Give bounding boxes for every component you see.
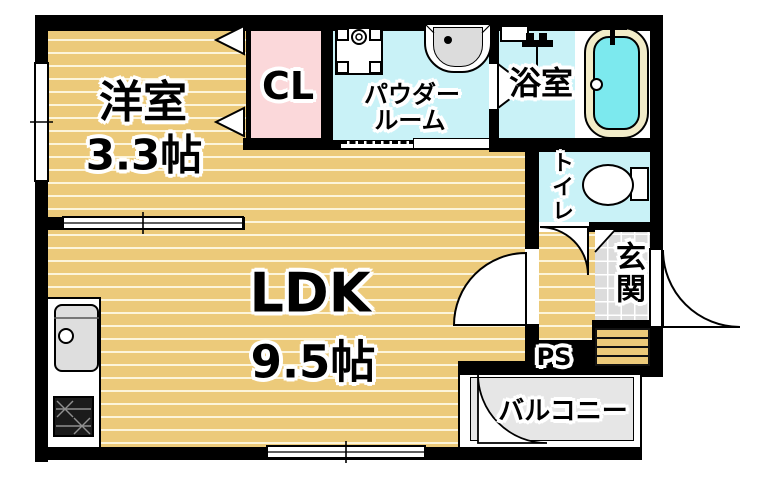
bathroom-label: 浴室: [509, 58, 573, 104]
toilet-bowl-icon: [582, 164, 634, 206]
entrance-door-swing-icon: [663, 250, 740, 327]
ldk-label: LDK: [249, 262, 370, 325]
wall-right-upper: [650, 15, 663, 250]
pan-corner: [336, 28, 349, 41]
wall-closet-powder: [321, 26, 333, 150]
entrance-door-leaf: [649, 248, 663, 328]
powder-room-label-line2: ルーム: [374, 101, 445, 136]
doorway-bath: [489, 64, 499, 109]
toilet-label: トイレ: [544, 151, 576, 223]
wall-closet-bottom: [243, 138, 333, 150]
bath-window: [500, 25, 529, 42]
wall-bath-toilet: [489, 138, 663, 152]
balcony-label: バルコニー: [498, 391, 627, 428]
pan-corner: [369, 28, 382, 41]
ldk-size: 9.5帖: [251, 326, 376, 391]
bathtub-faucet-icon: [600, 21, 627, 30]
pan-corner: [369, 61, 382, 74]
doorway-toilet: [539, 222, 589, 232]
window-western-left: [34, 62, 49, 182]
entrance-label: 玄関: [605, 241, 649, 305]
window-ldk-bottom: [266, 445, 426, 459]
slider-western-ldk: [62, 216, 244, 230]
bathtub-drain-icon: [590, 78, 603, 91]
pipe-space-label: PS: [537, 343, 572, 371]
basin-faucet-icon: [444, 36, 452, 44]
slider-powder: [413, 138, 490, 149]
washing-machine-pan-icon: [335, 27, 383, 75]
sink-faucet-icon: [58, 328, 74, 344]
outside-patch: [642, 377, 672, 447]
opening-powder-dashed: [341, 141, 415, 148]
gas-stove-icon: [53, 396, 94, 437]
bathtub-faucet-stem: [610, 30, 615, 45]
doorway-ldk-hall: [525, 249, 539, 324]
wash-basin-bowl: [433, 27, 483, 67]
western-room-size: 3.3帖: [86, 122, 202, 183]
closet-label: CL: [262, 64, 314, 108]
western-room-label: 洋室: [99, 66, 187, 130]
entrance-step: [595, 328, 650, 366]
pan-corner: [336, 61, 349, 74]
wall-closet-left: [246, 26, 251, 140]
floorplan-canvas: 洋室 3.3帖 CL パウダー ルーム 浴室 トイレ 玄関 LDK 9.5帖 P…: [0, 0, 769, 481]
